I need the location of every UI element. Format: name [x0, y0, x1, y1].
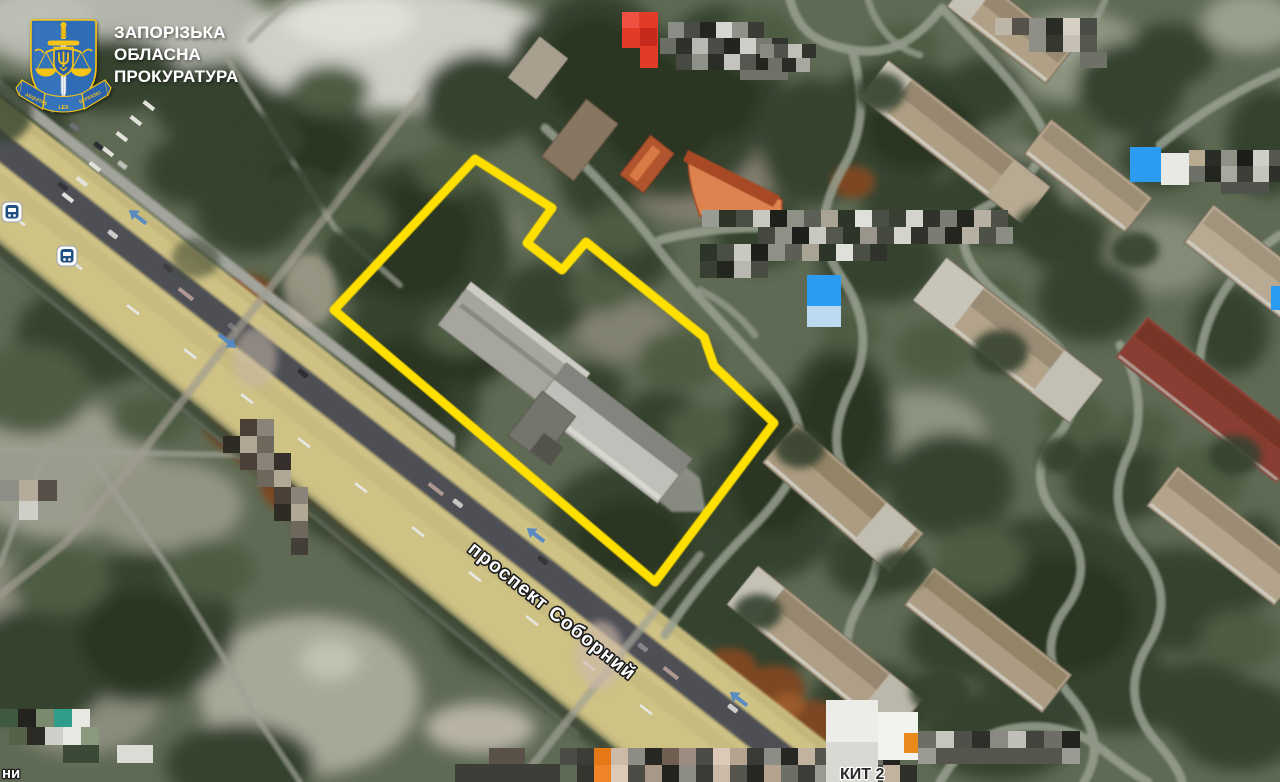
svg-text:ПРОКУРАТУРА: ПРОКУРАТУРА — [114, 67, 239, 86]
svg-text:LEX: LEX — [59, 105, 70, 111]
svg-text:ЗАПОРІЗЬКА: ЗАПОРІЗЬКА — [114, 23, 226, 42]
svg-text:ОБЛАСНА: ОБЛАСНА — [114, 45, 201, 64]
svg-text:КИТ 2: КИТ 2 — [840, 766, 884, 782]
svg-text:ни: ни — [2, 765, 20, 782]
